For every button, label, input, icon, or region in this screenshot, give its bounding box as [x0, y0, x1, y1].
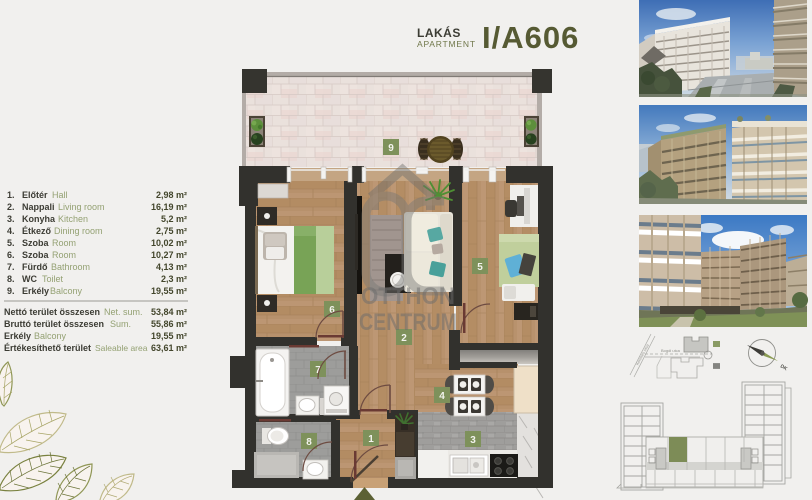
svg-text:2,98 m²: 2,98 m²	[156, 190, 187, 200]
svg-text:Bruttó terület összesen: Bruttó terület összesen	[4, 319, 104, 329]
svg-text:WC: WC	[22, 274, 37, 284]
svg-text:Bogdi utca: Bogdi utca	[661, 348, 681, 353]
svg-text:5.: 5.	[7, 238, 15, 248]
svg-text:3: 3	[470, 435, 476, 446]
svg-text:63,61 m²: 63,61 m²	[151, 343, 187, 353]
svg-text:Előtér: Előtér	[22, 190, 48, 200]
svg-text:Nappali: Nappali	[22, 202, 55, 212]
svg-text:7.: 7.	[7, 262, 15, 272]
svg-text:Erkély: Erkély	[22, 286, 49, 296]
svg-text:Hall: Hall	[52, 190, 68, 200]
svg-text:Balcony: Balcony	[50, 286, 83, 296]
svg-text:Bathroom: Bathroom	[51, 262, 90, 272]
svg-text:6.: 6.	[7, 250, 15, 260]
svg-text:Nettó terület összesen: Nettó terület összesen	[4, 307, 100, 317]
svg-text:Living room: Living room	[58, 202, 105, 212]
svg-text:4.: 4.	[7, 226, 15, 236]
svg-text:Konyha: Konyha	[22, 214, 56, 224]
svg-text:8.: 8.	[7, 274, 15, 284]
svg-text:Kitchen: Kitchen	[58, 214, 88, 224]
svg-text:2.: 2.	[7, 202, 15, 212]
svg-text:Room: Room	[52, 250, 76, 260]
svg-text:CENTRUM: CENTRUM	[359, 309, 457, 336]
svg-text:55,86 m²: 55,86 m²	[151, 319, 187, 329]
svg-text:4: 4	[439, 391, 445, 402]
svg-text:Toilet: Toilet	[42, 274, 64, 284]
svg-text:5,2 m²: 5,2 m²	[161, 214, 187, 224]
svg-text:Room: Room	[52, 238, 76, 248]
svg-text:53,84 m²: 53,84 m²	[151, 307, 187, 317]
svg-text:Sum.: Sum.	[110, 319, 131, 329]
svg-text:1: 1	[368, 434, 374, 445]
svg-text:2,75 m²: 2,75 m²	[156, 226, 187, 236]
svg-text:Dining room: Dining room	[54, 226, 103, 236]
svg-text:Erkély: Erkély	[4, 331, 31, 341]
svg-text:4,13 m²: 4,13 m²	[156, 262, 187, 272]
svg-text:Balcony: Balcony	[34, 331, 67, 341]
svg-text:10,27 m²: 10,27 m²	[151, 250, 187, 260]
svg-text:9: 9	[388, 143, 394, 154]
svg-text:I/A606: I/A606	[482, 20, 579, 55]
svg-text:5: 5	[477, 262, 483, 273]
svg-text:9.: 9.	[7, 286, 15, 296]
svg-text:19,55 m²: 19,55 m²	[151, 331, 187, 341]
svg-text:Értékesíthető terület: Értékesíthető terület	[4, 343, 91, 353]
svg-text:Étkező: Étkező	[22, 226, 52, 236]
svg-text:10,02 m²: 10,02 m²	[151, 238, 187, 248]
svg-text:8: 8	[306, 437, 312, 448]
svg-text:OTTHON: OTTHON	[361, 283, 455, 310]
svg-text:Saleable area: Saleable area	[95, 343, 148, 353]
svg-text:16,19 m²: 16,19 m²	[151, 202, 187, 212]
svg-text:Szoba: Szoba	[22, 250, 49, 260]
svg-text:2,3 m²: 2,3 m²	[161, 274, 187, 284]
svg-text:Fürdő: Fürdő	[22, 262, 48, 272]
svg-text:Net. sum.: Net. sum.	[104, 307, 143, 317]
svg-text:Szoba: Szoba	[22, 238, 49, 248]
svg-text:3.: 3.	[7, 214, 15, 224]
svg-text:APARTMENT: APARTMENT	[417, 39, 476, 49]
svg-text:1.: 1.	[7, 190, 15, 200]
svg-text:LAKÁS: LAKÁS	[417, 25, 461, 40]
svg-text:19,55 m²: 19,55 m²	[151, 286, 187, 296]
